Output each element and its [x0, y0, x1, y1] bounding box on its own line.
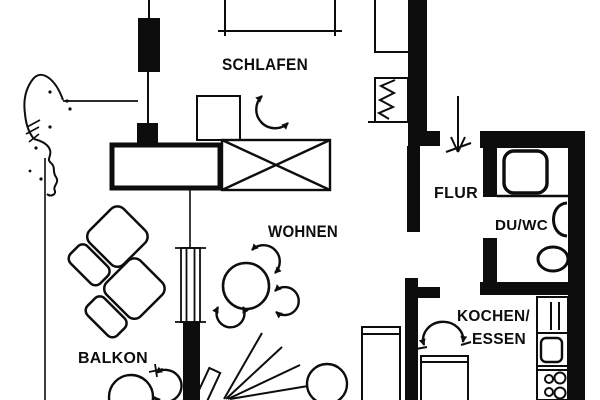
- chair-tick-right: [461, 342, 471, 345]
- entrance-arrow: [446, 96, 471, 152]
- room-label-schlafen: SCHLAFEN: [222, 55, 308, 74]
- wall-flur-left: [407, 146, 420, 232]
- dining-table: [421, 356, 468, 400]
- wall-kitchen-jamb: [418, 287, 440, 298]
- room-label-essen: ESSEN: [472, 331, 526, 348]
- wardrobe-corner: [375, 0, 408, 52]
- wardrobe-crossed-box: [222, 140, 330, 190]
- palm-frond1: [224, 333, 262, 399]
- dot: [68, 107, 71, 110]
- room-label-kochen: KOCHEN/: [457, 308, 530, 325]
- wall-duwc-left-upper: [483, 148, 497, 197]
- wall-flur-jamb: [408, 131, 440, 146]
- chair-arc-bottom: [217, 307, 245, 327]
- chair-arc-bedroom: [256, 96, 288, 128]
- wall-bedroom-right: [408, 0, 427, 133]
- living-room-group: WOHNEN: [195, 222, 400, 400]
- kitchen-group: KOCHEN/ ESSEN: [416, 297, 568, 400]
- wall-duwc-left-lower: [483, 238, 497, 283]
- hall-group: FLUR: [434, 96, 478, 202]
- round-table: [223, 263, 269, 309]
- shower-tray: [504, 151, 547, 193]
- dot: [48, 125, 51, 128]
- hatch-line1: [27, 120, 40, 127]
- bed: [218, 0, 342, 36]
- chair-arc-right: [275, 287, 299, 315]
- nightstand: [197, 96, 240, 140]
- balcony-window: [175, 248, 206, 322]
- dot: [29, 170, 32, 173]
- chimney-block-upper: [138, 18, 160, 72]
- structure-lines: [45, 0, 190, 400]
- sideboard-thick-box: [112, 145, 220, 188]
- dot: [48, 90, 51, 93]
- room-label-duwc: DU/WC: [495, 217, 548, 234]
- bathroom-group: DU/WC: [495, 151, 568, 271]
- cross-line2: [155, 364, 157, 377]
- washbasin: [554, 203, 568, 236]
- floorplan-page: SCHLAFEN WOHNEN: [0, 0, 600, 400]
- wall-balcony: [183, 322, 200, 400]
- chair-arc-kitchen: [423, 322, 463, 345]
- doodle-head-curve: [24, 75, 63, 139]
- plant-pot-circle: [307, 364, 347, 400]
- wall-right-exterior: [568, 131, 585, 400]
- chair-arc-balcony: [154, 370, 181, 400]
- room-label-balkon: BALKON: [78, 350, 148, 367]
- dot: [34, 146, 37, 149]
- kitchen-counter: [537, 297, 568, 400]
- radiator-zigzag: [379, 80, 395, 119]
- chimney-block-lower: [137, 123, 158, 143]
- sideboard-lower: [362, 327, 400, 400]
- sketch-doodle: [24, 75, 71, 196]
- radiator: [368, 78, 408, 122]
- wall-wohnen-kitchen: [405, 278, 418, 400]
- room-label-wohnen: WOHNEN: [268, 222, 338, 241]
- window-frame: [181, 248, 200, 322]
- balcony-group: BALKON: [64, 203, 182, 400]
- room-label-flur: FLUR: [434, 185, 478, 202]
- palm-plant: [195, 333, 308, 400]
- doodle-dots: [29, 90, 72, 180]
- balcony-table: [109, 375, 153, 400]
- floorplan-canvas: SCHLAFEN WOHNEN: [0, 0, 600, 400]
- dot: [39, 177, 42, 180]
- toilet: [538, 247, 568, 271]
- dot: [65, 99, 68, 102]
- sideboard-outline: [362, 327, 400, 400]
